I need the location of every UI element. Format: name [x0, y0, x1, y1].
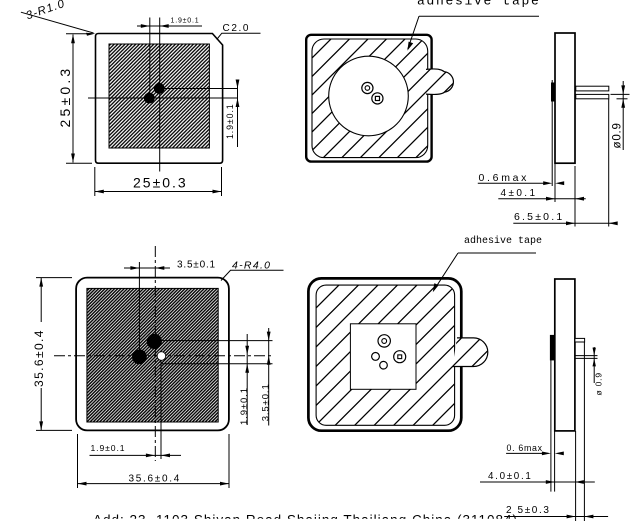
svg-text:3.5±0.1: 3.5±0.1	[177, 260, 216, 271]
svg-text:0. 6max: 0. 6max	[507, 443, 543, 453]
svg-text:35.6±0.4: 35.6±0.4	[32, 329, 46, 387]
svg-text:4.0±0.1: 4.0±0.1	[488, 471, 533, 482]
svg-text:3.5±0.1: 3.5±0.1	[260, 383, 271, 421]
svg-text:1.9±0.1: 1.9±0.1	[225, 103, 235, 139]
svg-text:1.9±0.1: 1.9±0.1	[91, 443, 126, 453]
svg-text:4-R4.0: 4-R4.0	[232, 260, 271, 272]
svg-text:25±0.3: 25±0.3	[57, 66, 73, 128]
svg-text:ø0.9: ø0.9	[612, 122, 624, 148]
svg-text:adhesive tape: adhesive tape	[417, 0, 541, 9]
svg-text:0.6max: 0.6max	[479, 172, 530, 184]
svg-text:C2.0: C2.0	[223, 23, 251, 34]
svg-text:4±0.1: 4±0.1	[501, 188, 538, 199]
svg-text:adhesive tape: adhesive tape	[464, 235, 542, 247]
svg-text:ø 0.9: ø 0.9	[594, 372, 604, 395]
svg-text:6.5±0.1: 6.5±0.1	[514, 211, 564, 223]
svg-text:1.9±0.1: 1.9±0.1	[239, 387, 250, 425]
svg-text:25±0.3: 25±0.3	[133, 175, 188, 191]
svg-text:1.9±0.1: 1.9±0.1	[171, 18, 200, 25]
svg-text:35.6±0.4: 35.6±0.4	[129, 473, 181, 484]
